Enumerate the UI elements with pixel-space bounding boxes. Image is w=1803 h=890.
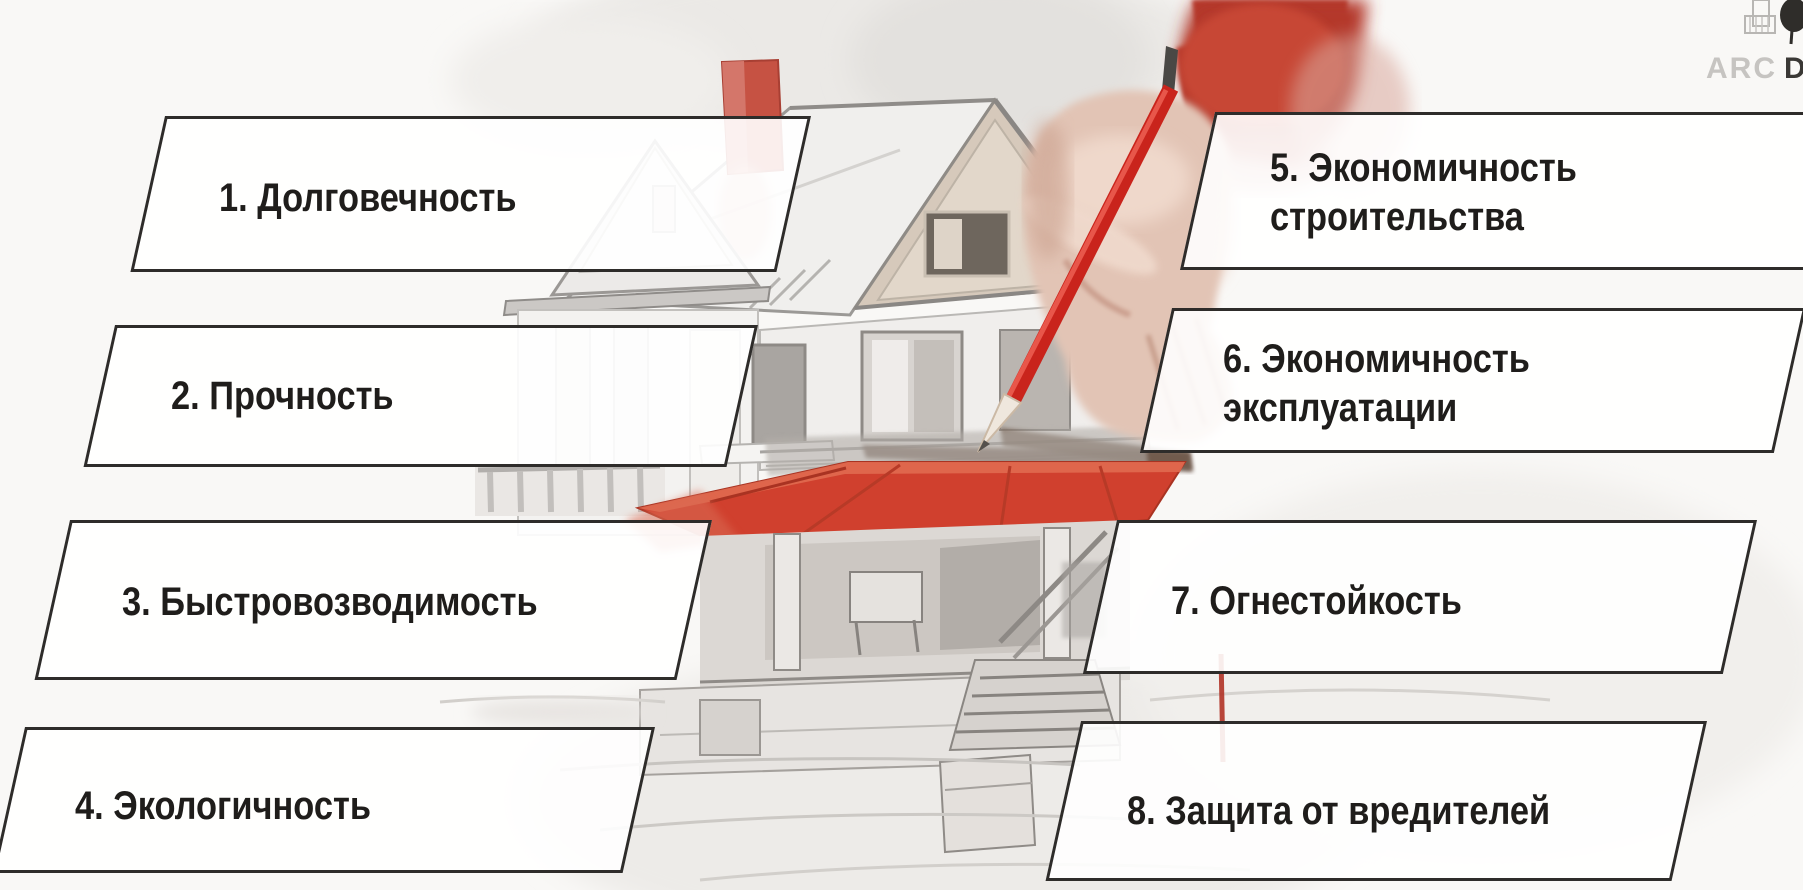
svg-text:D: D	[1784, 52, 1803, 85]
svg-text:ARC: ARC	[1706, 52, 1777, 85]
